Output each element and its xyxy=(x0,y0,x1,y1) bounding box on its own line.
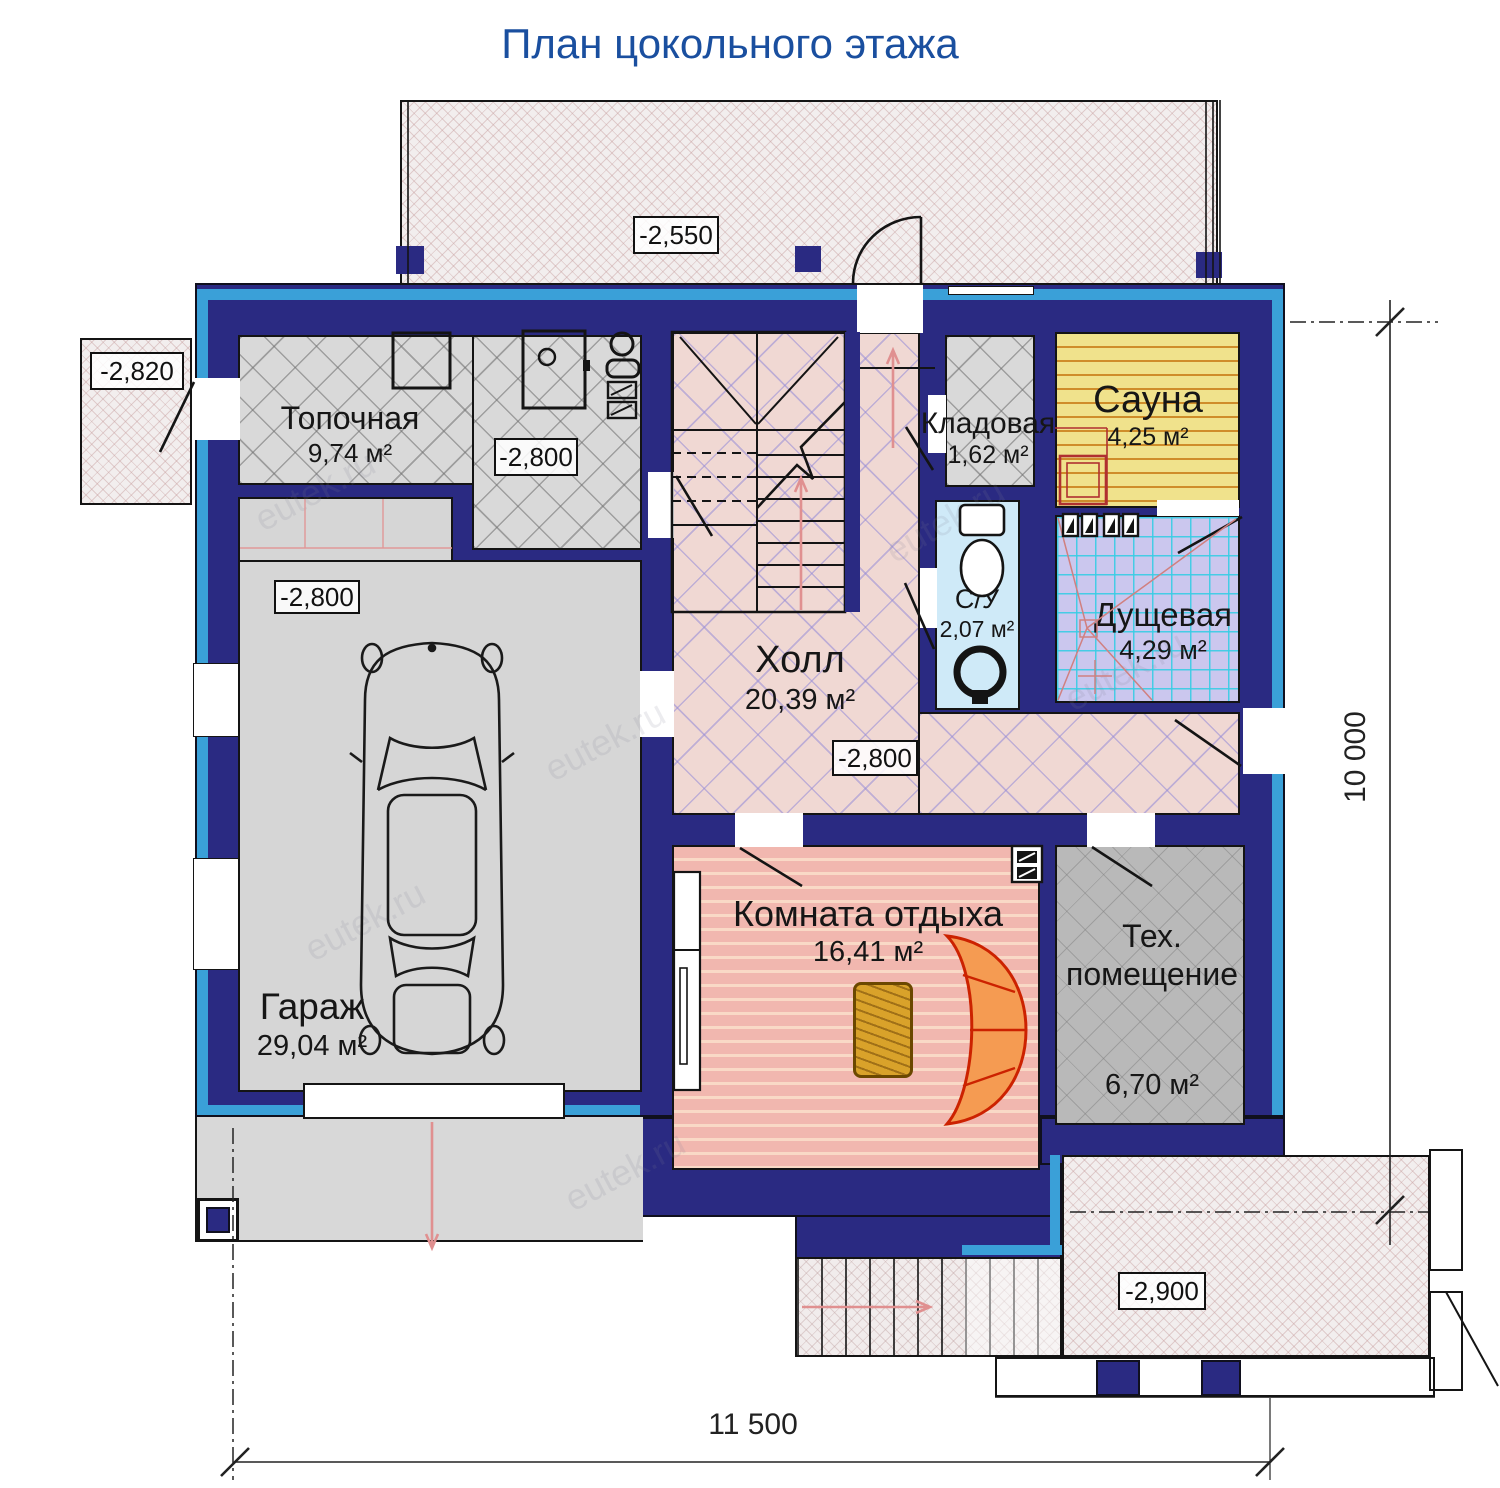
terrace-bottom xyxy=(1062,1155,1430,1357)
entry-column-2 xyxy=(1201,1360,1241,1396)
elevation-topochnaya: -2,800 xyxy=(494,438,578,476)
dimension-width: 11 500 xyxy=(653,1408,853,1442)
elevation-porch-left: -2,820 xyxy=(90,352,184,390)
garage-door xyxy=(303,1083,565,1119)
topochnaya-hall-door-gap xyxy=(648,472,674,538)
elevation-terrace-top: -2,550 xyxy=(633,216,719,254)
room-hall-corridor xyxy=(920,712,1240,815)
basement-floor-plan: План цокольного этажа xyxy=(0,0,1500,1488)
rest-door-gap xyxy=(735,813,803,847)
elevation-garage: -2,800 xyxy=(274,580,360,614)
driveway-column-outer xyxy=(197,1198,239,1242)
terrace-window xyxy=(948,286,1034,295)
trim-top xyxy=(197,289,1283,300)
trim-entry xyxy=(962,1245,1062,1255)
dushevaya-door-gap xyxy=(1157,500,1239,516)
dimension-height: 10 000 xyxy=(1339,687,1373,827)
terrace-column-3 xyxy=(1196,252,1222,278)
terrace-column-2 xyxy=(795,246,821,272)
driveway-column-inner xyxy=(206,1207,230,1233)
garage-window-1 xyxy=(193,663,239,737)
page-title: План цокольного этажа xyxy=(380,20,1080,68)
entry-door-gap xyxy=(857,285,923,333)
entry-column-1 xyxy=(1096,1360,1140,1396)
label-tech: Тех. помещение xyxy=(1057,918,1247,994)
corridor-right-door-gap xyxy=(1243,708,1285,774)
label-hall: Холл 20,39 м² xyxy=(690,638,910,717)
terrace-column-1 xyxy=(396,246,424,274)
tech-door-gap xyxy=(1087,813,1155,847)
label-sauna: Сауна 4,25 м² xyxy=(1040,378,1256,452)
table xyxy=(853,982,913,1078)
trim-entry-side xyxy=(1050,1155,1060,1255)
label-tech-area: 6,70 м² xyxy=(1057,1068,1247,1102)
label-su: С/У 2,07 м² xyxy=(917,584,1037,643)
trim-right xyxy=(1272,289,1283,1115)
garage-window-2 xyxy=(193,858,239,970)
entry-stairs-fade xyxy=(965,1259,1060,1355)
label-rest: Комната отдыха 16,41 м² xyxy=(688,893,1048,970)
elevation-entry: -2,900 xyxy=(1118,1272,1206,1310)
label-garage: Гараж 29,04 м² xyxy=(192,985,432,1063)
elevation-hall: -2,800 xyxy=(832,740,918,776)
